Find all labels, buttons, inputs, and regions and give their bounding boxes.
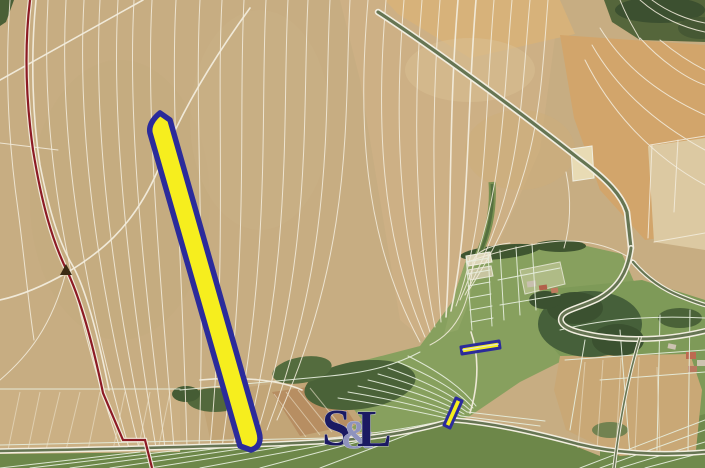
watermark-letter-l: L — [357, 401, 392, 458]
aerial-cadastral-map[interactable]: S & L — [0, 0, 705, 468]
watermark: S & L — [322, 400, 392, 458]
map-viewport[interactable]: S & L — [0, 0, 705, 468]
